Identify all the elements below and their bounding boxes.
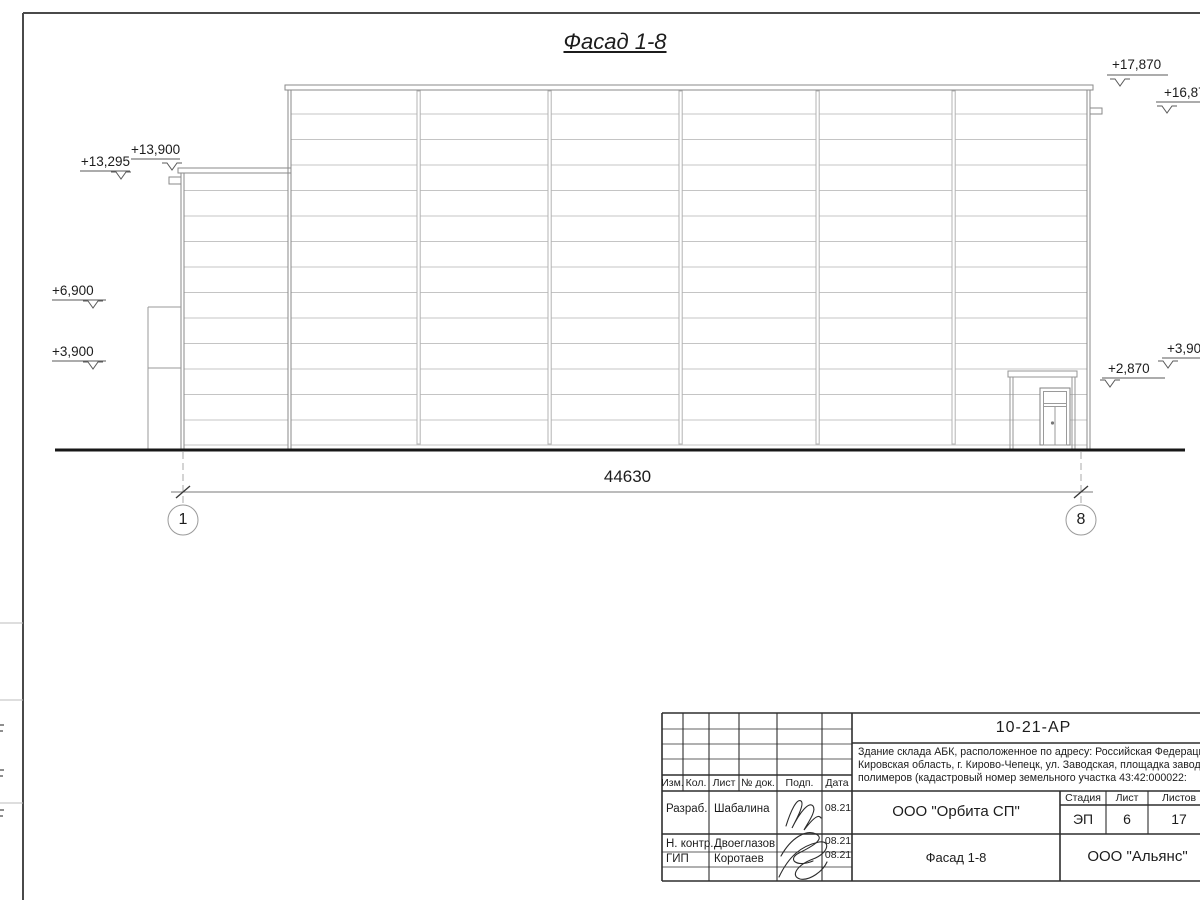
stage-value: ЭП	[1060, 812, 1106, 827]
left-margin-stamp-fragment	[0, 623, 23, 803]
elevation-label: +13,900	[131, 143, 180, 158]
signer-role: Разраб.	[666, 803, 707, 816]
signer-name: Коротаев	[714, 853, 764, 866]
axis-label-8: 8	[1066, 511, 1096, 529]
elevation-label: +3,900	[52, 345, 94, 360]
elevation-label: +13,295	[68, 155, 130, 170]
drawing-title: Фасад 1-8	[520, 30, 710, 54]
client-organization: ООО "Альянс"	[1060, 849, 1200, 866]
doc-number: 10-21-АР	[852, 719, 1200, 737]
sheet-drawing-name: Фасад 1-8	[852, 851, 1060, 865]
sheets-total: 17	[1148, 812, 1200, 827]
sheets-label: Листов	[1148, 793, 1200, 805]
elevation-mark-symbols	[52, 75, 1200, 387]
dimension-value: 44630	[560, 468, 695, 487]
signer-date: 08.21	[824, 836, 852, 848]
design-company: ООО "Орбита СП"	[852, 804, 1060, 821]
left-annex-outline	[148, 307, 181, 449]
signer-role: Н. контр.	[666, 838, 713, 851]
signer-name: Шабалина	[714, 803, 770, 816]
elevation-label: +16,870	[1164, 86, 1200, 101]
col-header-list: Лист	[709, 778, 739, 790]
elevation-label: +2,870	[1108, 362, 1150, 377]
elevation-label: +6,900	[52, 284, 94, 299]
signer-date: 08.21	[824, 850, 852, 862]
elevation-label: +17,870	[1112, 58, 1161, 73]
signer-name: Двоеглазов	[714, 838, 775, 851]
project-description-line: Здание склада АБК, расположенное по адре…	[858, 747, 1200, 759]
drawing-sheet: Фасад 1-8 +13,295 +13,900 +6,900 +3,900 …	[0, 0, 1200, 900]
elevation-label: +3,900	[1167, 342, 1200, 357]
entrance-door	[1040, 388, 1070, 445]
signer-role: ГИП	[666, 853, 689, 866]
sheet-label: Лист	[1106, 793, 1148, 805]
project-description-line: Кировская область, г. Кирово-Чепецк, ул.…	[858, 760, 1200, 772]
col-header-data: Дата	[822, 778, 852, 790]
project-description-line: полимеров (кадастровый номер земельного …	[858, 773, 1187, 785]
sheet-number: 6	[1106, 812, 1148, 827]
col-header-kol: Кол.	[683, 778, 709, 790]
axis-label-1: 1	[168, 511, 198, 529]
door-handle-icon	[1051, 421, 1054, 424]
dimension-string	[168, 452, 1096, 535]
stage-label: Стадия	[1060, 793, 1106, 805]
col-header-podp: Подп.	[777, 778, 822, 790]
col-header-izm: Изм.	[661, 778, 684, 790]
signature-scribbles	[779, 801, 827, 880]
col-header-doc: № док.	[739, 778, 777, 790]
signer-date: 08.21	[824, 803, 852, 815]
